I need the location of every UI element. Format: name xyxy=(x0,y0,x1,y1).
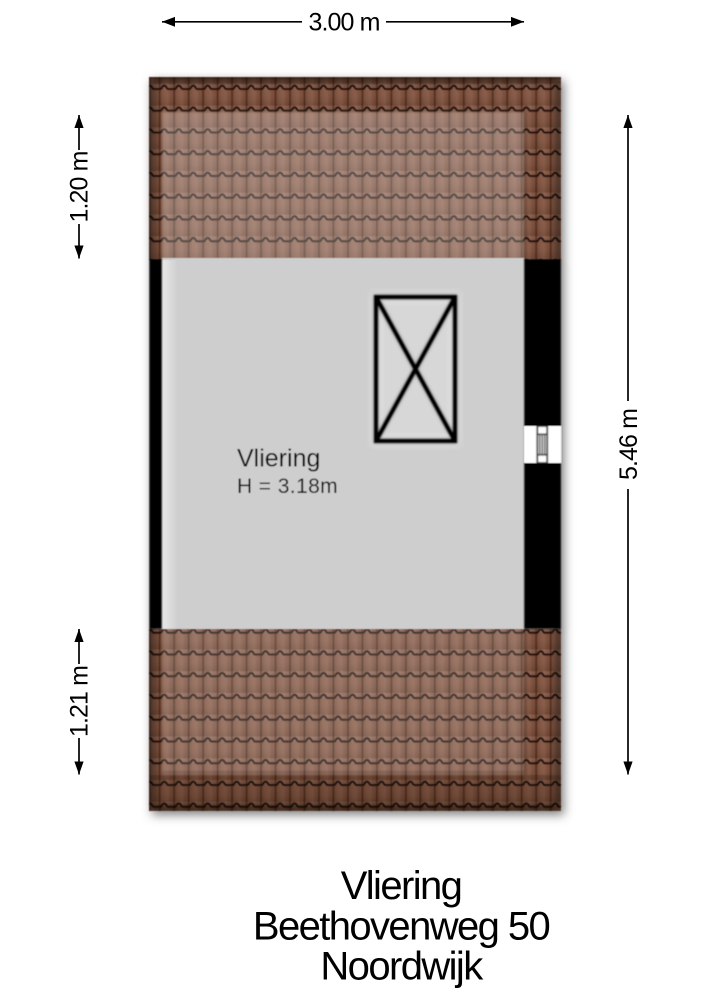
svg-text:Vliering: Vliering xyxy=(237,445,320,473)
svg-text:3.00 m: 3.00 m xyxy=(308,8,379,36)
svg-text:Noordwijk: Noordwijk xyxy=(320,945,484,989)
svg-text:Vliering: Vliering xyxy=(341,864,462,908)
svg-text:1.21 m: 1.21 m xyxy=(66,666,94,737)
svg-text:H = 3.18m: H = 3.18m xyxy=(237,475,338,498)
svg-text:Beethovenweg 50: Beethovenweg 50 xyxy=(253,905,550,949)
svg-text:1.20 m: 1.20 m xyxy=(66,151,94,222)
svg-text:5.46 m: 5.46 m xyxy=(615,409,643,480)
